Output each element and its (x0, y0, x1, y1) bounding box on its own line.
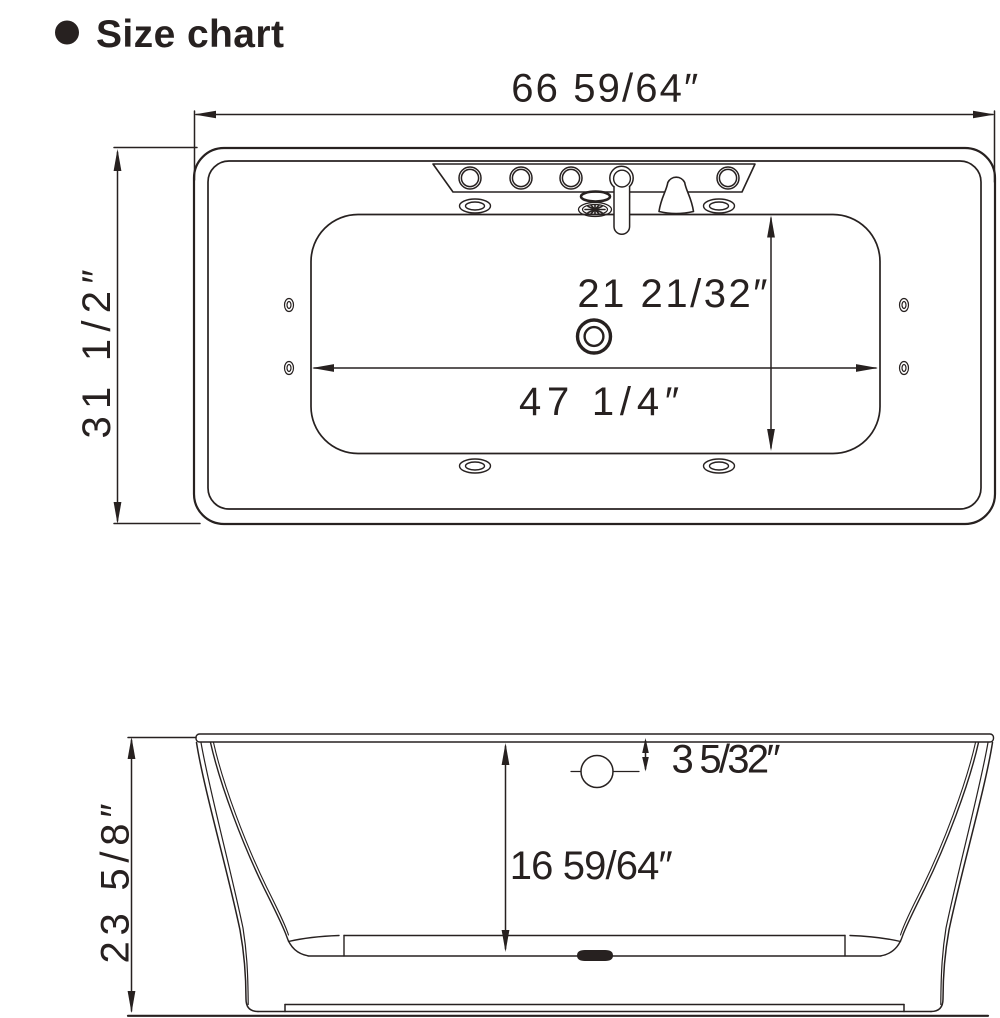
svg-text:Size chart: Size chart (96, 13, 284, 56)
svg-text:3 5/32″: 3 5/32″ (672, 737, 781, 781)
svg-text:47 1/4″: 47 1/4″ (519, 380, 679, 424)
svg-text:31 1/2″: 31 1/2″ (75, 270, 119, 439)
svg-text:21 21/32″: 21 21/32″ (577, 272, 767, 316)
svg-text:16 59/64″: 16 59/64″ (510, 844, 673, 888)
svg-text:66 59/64″: 66 59/64″ (511, 67, 698, 111)
